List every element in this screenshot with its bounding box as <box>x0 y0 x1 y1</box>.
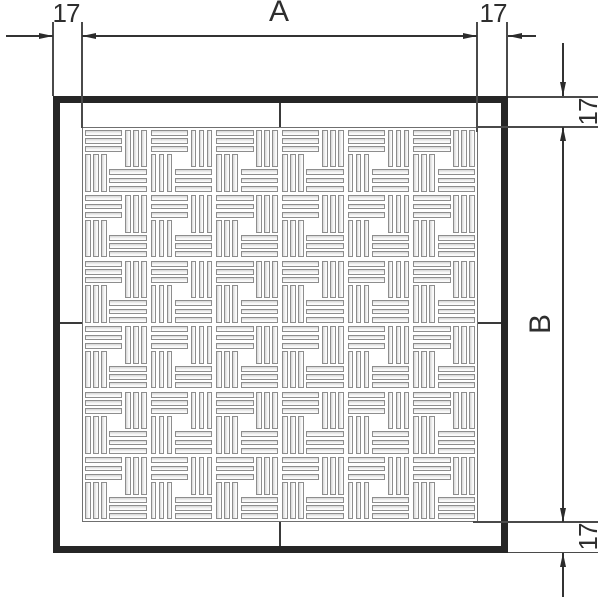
slat <box>282 351 288 388</box>
slat-group-bottom <box>175 366 212 388</box>
slat <box>372 317 409 323</box>
slat <box>438 317 475 323</box>
slat-group-left <box>216 285 238 322</box>
slat <box>372 186 409 192</box>
slat <box>85 351 91 388</box>
slat <box>364 351 370 388</box>
slat <box>306 235 343 241</box>
slat <box>85 220 91 257</box>
slat <box>241 497 278 503</box>
slat-group-bottom <box>241 169 278 191</box>
slat <box>461 457 467 494</box>
slat <box>241 169 278 175</box>
slat <box>290 285 296 322</box>
slat <box>404 261 410 298</box>
slat <box>125 457 131 494</box>
slat-group-top <box>413 392 450 414</box>
slat <box>282 261 319 267</box>
slat-group-bottom <box>175 169 212 191</box>
slat <box>93 285 99 322</box>
slat <box>348 326 385 332</box>
slat-group-top <box>413 457 450 479</box>
slat <box>413 212 450 218</box>
slat <box>282 146 319 152</box>
slat-group-bottom <box>306 235 343 257</box>
slat <box>282 277 319 283</box>
slat <box>438 178 475 184</box>
slat <box>151 343 188 349</box>
slat <box>372 243 409 249</box>
slat <box>364 416 370 453</box>
slat <box>175 178 212 184</box>
slat <box>404 392 410 429</box>
slat <box>388 457 394 494</box>
slat <box>232 482 238 519</box>
slat <box>175 366 212 372</box>
grate-tile <box>83 128 149 194</box>
grate-tile <box>83 194 149 260</box>
slat <box>216 343 253 349</box>
slat <box>85 400 122 406</box>
slat <box>438 243 475 249</box>
slat <box>330 392 336 429</box>
slat-group-right <box>388 326 410 363</box>
slat <box>175 497 212 503</box>
slat <box>348 138 385 144</box>
slat <box>330 457 336 494</box>
slat-group-left <box>216 351 238 388</box>
grate-tile <box>83 259 149 325</box>
slat <box>330 195 336 232</box>
slat-group-bottom <box>438 169 475 191</box>
slat <box>348 466 385 472</box>
slat <box>272 457 278 494</box>
dim-label-17-top-left: 17 <box>46 0 86 28</box>
slat <box>93 482 99 519</box>
slat <box>372 431 409 437</box>
slat <box>264 130 270 167</box>
slat <box>85 474 122 480</box>
slat <box>438 513 475 519</box>
slat <box>264 392 270 429</box>
slat-group-right <box>256 261 278 298</box>
slat <box>348 220 354 257</box>
slat <box>348 392 385 398</box>
slat <box>461 392 467 429</box>
arrowhead-left-icon <box>82 33 96 39</box>
slat <box>396 261 402 298</box>
slat-group-right <box>388 195 410 232</box>
slat <box>216 416 222 453</box>
slat-group-right <box>125 326 147 363</box>
grate-tile <box>411 456 477 522</box>
slat <box>241 309 278 315</box>
slat <box>282 326 319 332</box>
slat-group-right <box>256 392 278 429</box>
slat-group-bottom <box>241 235 278 257</box>
slat-group-bottom <box>109 300 146 322</box>
slat <box>322 392 328 429</box>
slat-group-right <box>322 457 344 494</box>
slat <box>338 130 344 167</box>
slat-group-right <box>322 195 344 232</box>
slat <box>469 261 475 298</box>
slat <box>241 440 278 446</box>
slat <box>364 285 370 322</box>
slat-group-right <box>453 392 475 429</box>
slat <box>372 374 409 380</box>
slat <box>348 351 354 388</box>
slat <box>438 440 475 446</box>
slat <box>322 195 328 232</box>
slat <box>338 457 344 494</box>
slat-group-left <box>151 285 173 322</box>
slat-group-bottom <box>306 366 343 388</box>
frame-seam-left <box>60 322 82 324</box>
slat <box>216 212 253 218</box>
slat <box>175 186 212 192</box>
slat <box>133 130 139 167</box>
slat <box>348 285 354 322</box>
slat <box>298 154 304 191</box>
slat <box>151 457 188 463</box>
slat <box>101 351 107 388</box>
slat <box>322 457 328 494</box>
slat <box>372 382 409 388</box>
slat <box>216 195 253 201</box>
slat-group-bottom <box>175 300 212 322</box>
slat-group-left <box>282 154 304 191</box>
grate-tile <box>214 390 280 456</box>
slat <box>282 195 319 201</box>
slat <box>438 300 475 306</box>
slat <box>151 335 188 341</box>
slat <box>453 457 459 494</box>
slat <box>298 351 304 388</box>
slat <box>151 285 157 322</box>
slat-group-top <box>348 457 385 479</box>
slat <box>216 204 253 210</box>
slat <box>256 392 262 429</box>
slat <box>364 220 370 257</box>
frame-seam-bottom <box>279 522 281 546</box>
slat <box>175 243 212 249</box>
slat <box>109 178 146 184</box>
slat <box>413 482 419 519</box>
slat <box>272 326 278 363</box>
slat <box>290 220 296 257</box>
slat <box>109 513 146 519</box>
slat <box>306 309 343 315</box>
slat <box>461 195 467 232</box>
slat <box>241 513 278 519</box>
slat <box>109 309 146 315</box>
slat <box>438 505 475 511</box>
slat <box>282 154 288 191</box>
slat-group-bottom <box>372 497 409 519</box>
slat <box>133 457 139 494</box>
slat <box>413 416 419 453</box>
slat <box>93 220 99 257</box>
slat-group-left <box>282 285 304 322</box>
slat <box>141 195 147 232</box>
slat-group-right <box>388 261 410 298</box>
slat <box>101 220 107 257</box>
slat <box>469 195 475 232</box>
slat <box>85 466 122 472</box>
slat-group-bottom <box>175 235 212 257</box>
slat-group-bottom <box>175 431 212 453</box>
slat <box>348 482 354 519</box>
slat <box>241 448 278 454</box>
slat <box>109 366 146 372</box>
slat <box>167 482 173 519</box>
slat <box>272 195 278 232</box>
slat <box>438 169 475 175</box>
slat-group-top <box>348 261 385 283</box>
slat <box>396 392 402 429</box>
slat-group-left <box>151 220 173 257</box>
slat-group-top <box>151 392 188 414</box>
slat <box>348 154 354 191</box>
slat <box>413 138 450 144</box>
slat <box>413 154 419 191</box>
grate-tile <box>411 259 477 325</box>
slat-group-top <box>216 326 253 348</box>
slat <box>429 220 435 257</box>
slat <box>216 138 253 144</box>
slat <box>133 261 139 298</box>
slat <box>396 326 402 363</box>
slat-group-right <box>453 261 475 298</box>
slat <box>348 416 354 453</box>
slat-group-top <box>216 195 253 217</box>
slat <box>175 251 212 257</box>
slat <box>224 482 230 519</box>
slat-group-left <box>413 351 435 388</box>
slat <box>191 261 197 298</box>
slat <box>216 130 253 136</box>
slat <box>175 235 212 241</box>
grate-tile <box>149 325 215 391</box>
slat <box>224 154 230 191</box>
slat <box>109 374 146 380</box>
slat <box>348 269 385 275</box>
slat-group-right <box>256 326 278 363</box>
slat <box>151 392 188 398</box>
slat-group-left <box>85 154 107 191</box>
arrowhead-right-icon <box>463 33 477 39</box>
slat <box>85 154 91 191</box>
grate-tile <box>411 128 477 194</box>
slat <box>338 392 344 429</box>
slat-group-top <box>348 392 385 414</box>
slat-group-right <box>191 261 213 298</box>
slat <box>413 220 419 257</box>
slat <box>372 235 409 241</box>
slat <box>207 195 213 232</box>
grate-tile <box>214 194 280 260</box>
slat <box>306 317 343 323</box>
slat <box>85 416 91 453</box>
slat-group-left <box>151 351 173 388</box>
slat <box>125 392 131 429</box>
slat <box>264 457 270 494</box>
slat <box>306 300 343 306</box>
slat <box>413 335 450 341</box>
slat <box>159 154 165 191</box>
slat <box>151 195 188 201</box>
slat <box>306 497 343 503</box>
slat-group-bottom <box>306 169 343 191</box>
slat-group-left <box>282 351 304 388</box>
slat <box>151 400 188 406</box>
slat-group-top <box>413 195 450 217</box>
slat <box>216 457 253 463</box>
grate-tile <box>149 456 215 522</box>
slat <box>306 505 343 511</box>
slat <box>256 326 262 363</box>
slat <box>413 474 450 480</box>
slat-group-left <box>348 220 370 257</box>
slat <box>348 261 385 267</box>
slat <box>101 482 107 519</box>
slat <box>85 269 122 275</box>
slat <box>256 457 262 494</box>
grate-tile <box>280 194 346 260</box>
slat <box>388 392 394 429</box>
frame-seam-top <box>279 103 281 127</box>
slat <box>272 130 278 167</box>
slat <box>348 408 385 414</box>
slat <box>199 392 205 429</box>
arrowhead-down-icon <box>560 82 566 96</box>
grate-tile <box>346 390 412 456</box>
slat <box>388 195 394 232</box>
slat-group-left <box>348 351 370 388</box>
slat-group-top <box>413 130 450 152</box>
slat-group-left <box>282 482 304 519</box>
slat-group-bottom <box>372 169 409 191</box>
slat <box>109 169 146 175</box>
slat-group-left <box>216 220 238 257</box>
slat-group-bottom <box>306 300 343 322</box>
slat-group-bottom <box>438 235 475 257</box>
slat-group-top <box>348 195 385 217</box>
slat-group-top <box>282 326 319 348</box>
slat <box>282 482 288 519</box>
slat <box>438 382 475 388</box>
slat <box>429 351 435 388</box>
slat <box>232 285 238 322</box>
slat-group-top <box>151 457 188 479</box>
slat <box>175 309 212 315</box>
slat <box>207 326 213 363</box>
slat-group-bottom <box>306 431 343 453</box>
slat <box>348 204 385 210</box>
slat <box>348 277 385 283</box>
dim-label-17-right-top: 17 <box>573 92 602 132</box>
slat <box>199 195 205 232</box>
slat-group-right <box>256 457 278 494</box>
slat <box>438 366 475 372</box>
slat <box>159 285 165 322</box>
slat <box>109 497 146 503</box>
slat <box>364 154 370 191</box>
slat-group-bottom <box>372 235 409 257</box>
slat <box>429 416 435 453</box>
slat <box>191 457 197 494</box>
slat <box>85 326 122 332</box>
slat <box>175 317 212 323</box>
slat <box>438 235 475 241</box>
slat <box>133 392 139 429</box>
grate-tile <box>411 194 477 260</box>
slat <box>232 154 238 191</box>
slat <box>159 220 165 257</box>
grate-tile <box>83 325 149 391</box>
slat <box>364 482 370 519</box>
slat <box>461 130 467 167</box>
grate-tile <box>214 456 280 522</box>
slat <box>167 154 173 191</box>
slat-group-bottom <box>109 431 146 453</box>
slat <box>330 326 336 363</box>
slat-group-top <box>282 457 319 479</box>
slat <box>151 277 188 283</box>
slat <box>421 154 427 191</box>
slat <box>306 178 343 184</box>
grate-tile <box>149 259 215 325</box>
slat <box>372 169 409 175</box>
slat <box>438 431 475 437</box>
slat <box>85 277 122 283</box>
slat <box>232 351 238 388</box>
slat-group-bottom <box>438 431 475 453</box>
slat <box>85 457 122 463</box>
slat <box>453 195 459 232</box>
slat-group-right <box>453 195 475 232</box>
slat <box>151 130 188 136</box>
grate-tile <box>346 128 412 194</box>
slat <box>306 169 343 175</box>
slat <box>241 300 278 306</box>
slat-group-bottom <box>438 300 475 322</box>
slat-group-bottom <box>175 497 212 519</box>
slat-group-bottom <box>241 300 278 322</box>
slat <box>109 448 146 454</box>
slat-group-right <box>191 195 213 232</box>
slat <box>306 374 343 380</box>
slat <box>348 130 385 136</box>
slat-group-right <box>256 195 278 232</box>
slat-group-top <box>216 392 253 414</box>
slat <box>356 285 362 322</box>
slat <box>151 261 188 267</box>
slat-group-right <box>322 130 344 167</box>
slat <box>85 195 122 201</box>
slat-group-left <box>151 482 173 519</box>
slat <box>282 130 319 136</box>
slat <box>85 261 122 267</box>
slat <box>216 351 222 388</box>
slat <box>85 335 122 341</box>
slat-group-top <box>151 261 188 283</box>
arrowhead-right-icon <box>39 33 53 39</box>
slat <box>167 351 173 388</box>
slat <box>413 277 450 283</box>
slat <box>151 204 188 210</box>
